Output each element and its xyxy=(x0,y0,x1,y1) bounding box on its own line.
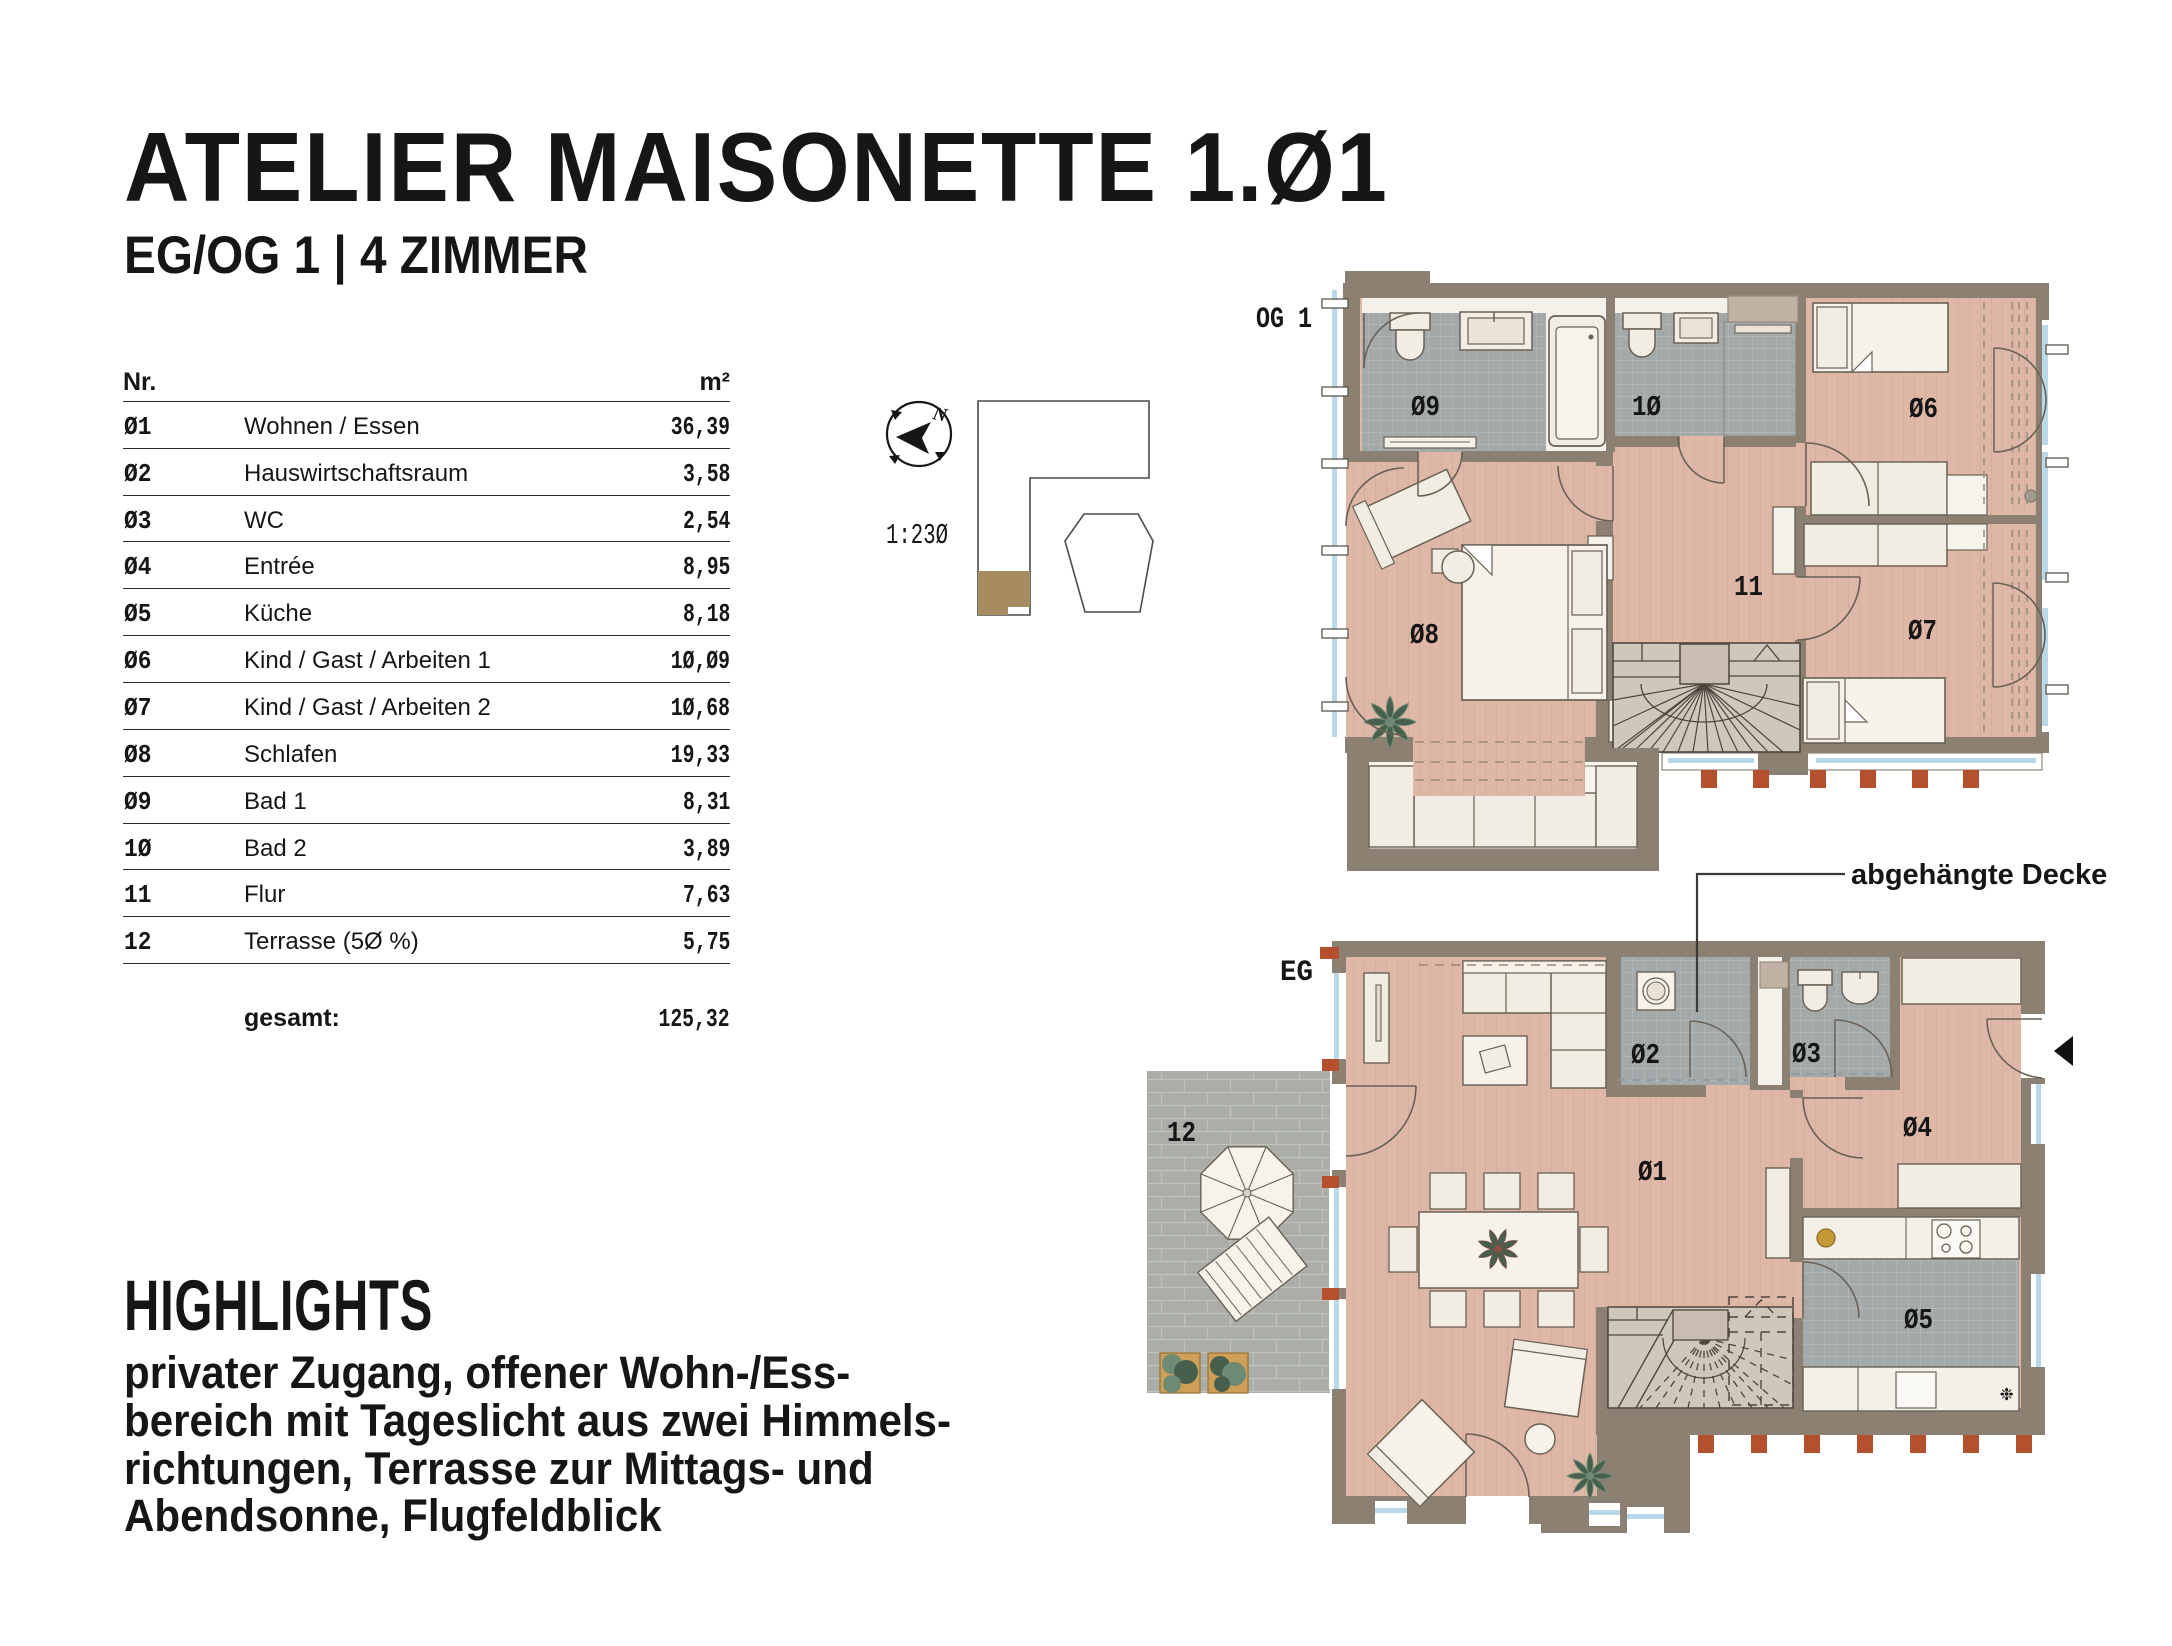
svg-text:Ø9: Ø9 xyxy=(1411,391,1440,424)
svg-text:Ø4: Ø4 xyxy=(1903,1112,1932,1145)
svg-text:1Ø: 1Ø xyxy=(1632,391,1661,424)
svg-text:Ø3: Ø3 xyxy=(1792,1038,1821,1071)
svg-text:abgehängte Decke: abgehängte Decke xyxy=(1851,859,2107,891)
svg-text:Ø7: Ø7 xyxy=(1908,615,1937,648)
svg-text:1:23Ø: 1:23Ø xyxy=(886,519,948,552)
svg-text:OG 1: OG 1 xyxy=(1256,303,1312,337)
svg-text:Ø8: Ø8 xyxy=(1410,619,1439,652)
svg-text:❉: ❉ xyxy=(2000,1380,2013,1405)
svg-text:11: 11 xyxy=(1734,571,1763,604)
svg-text:EG: EG xyxy=(1280,956,1313,990)
svg-text:Ø5: Ø5 xyxy=(1904,1304,1933,1337)
svg-text:Ø1: Ø1 xyxy=(1638,1156,1667,1189)
svg-text:Ø2: Ø2 xyxy=(1631,1039,1660,1072)
svg-text:12: 12 xyxy=(1167,1117,1196,1150)
svg-text:Ø6: Ø6 xyxy=(1909,393,1938,426)
